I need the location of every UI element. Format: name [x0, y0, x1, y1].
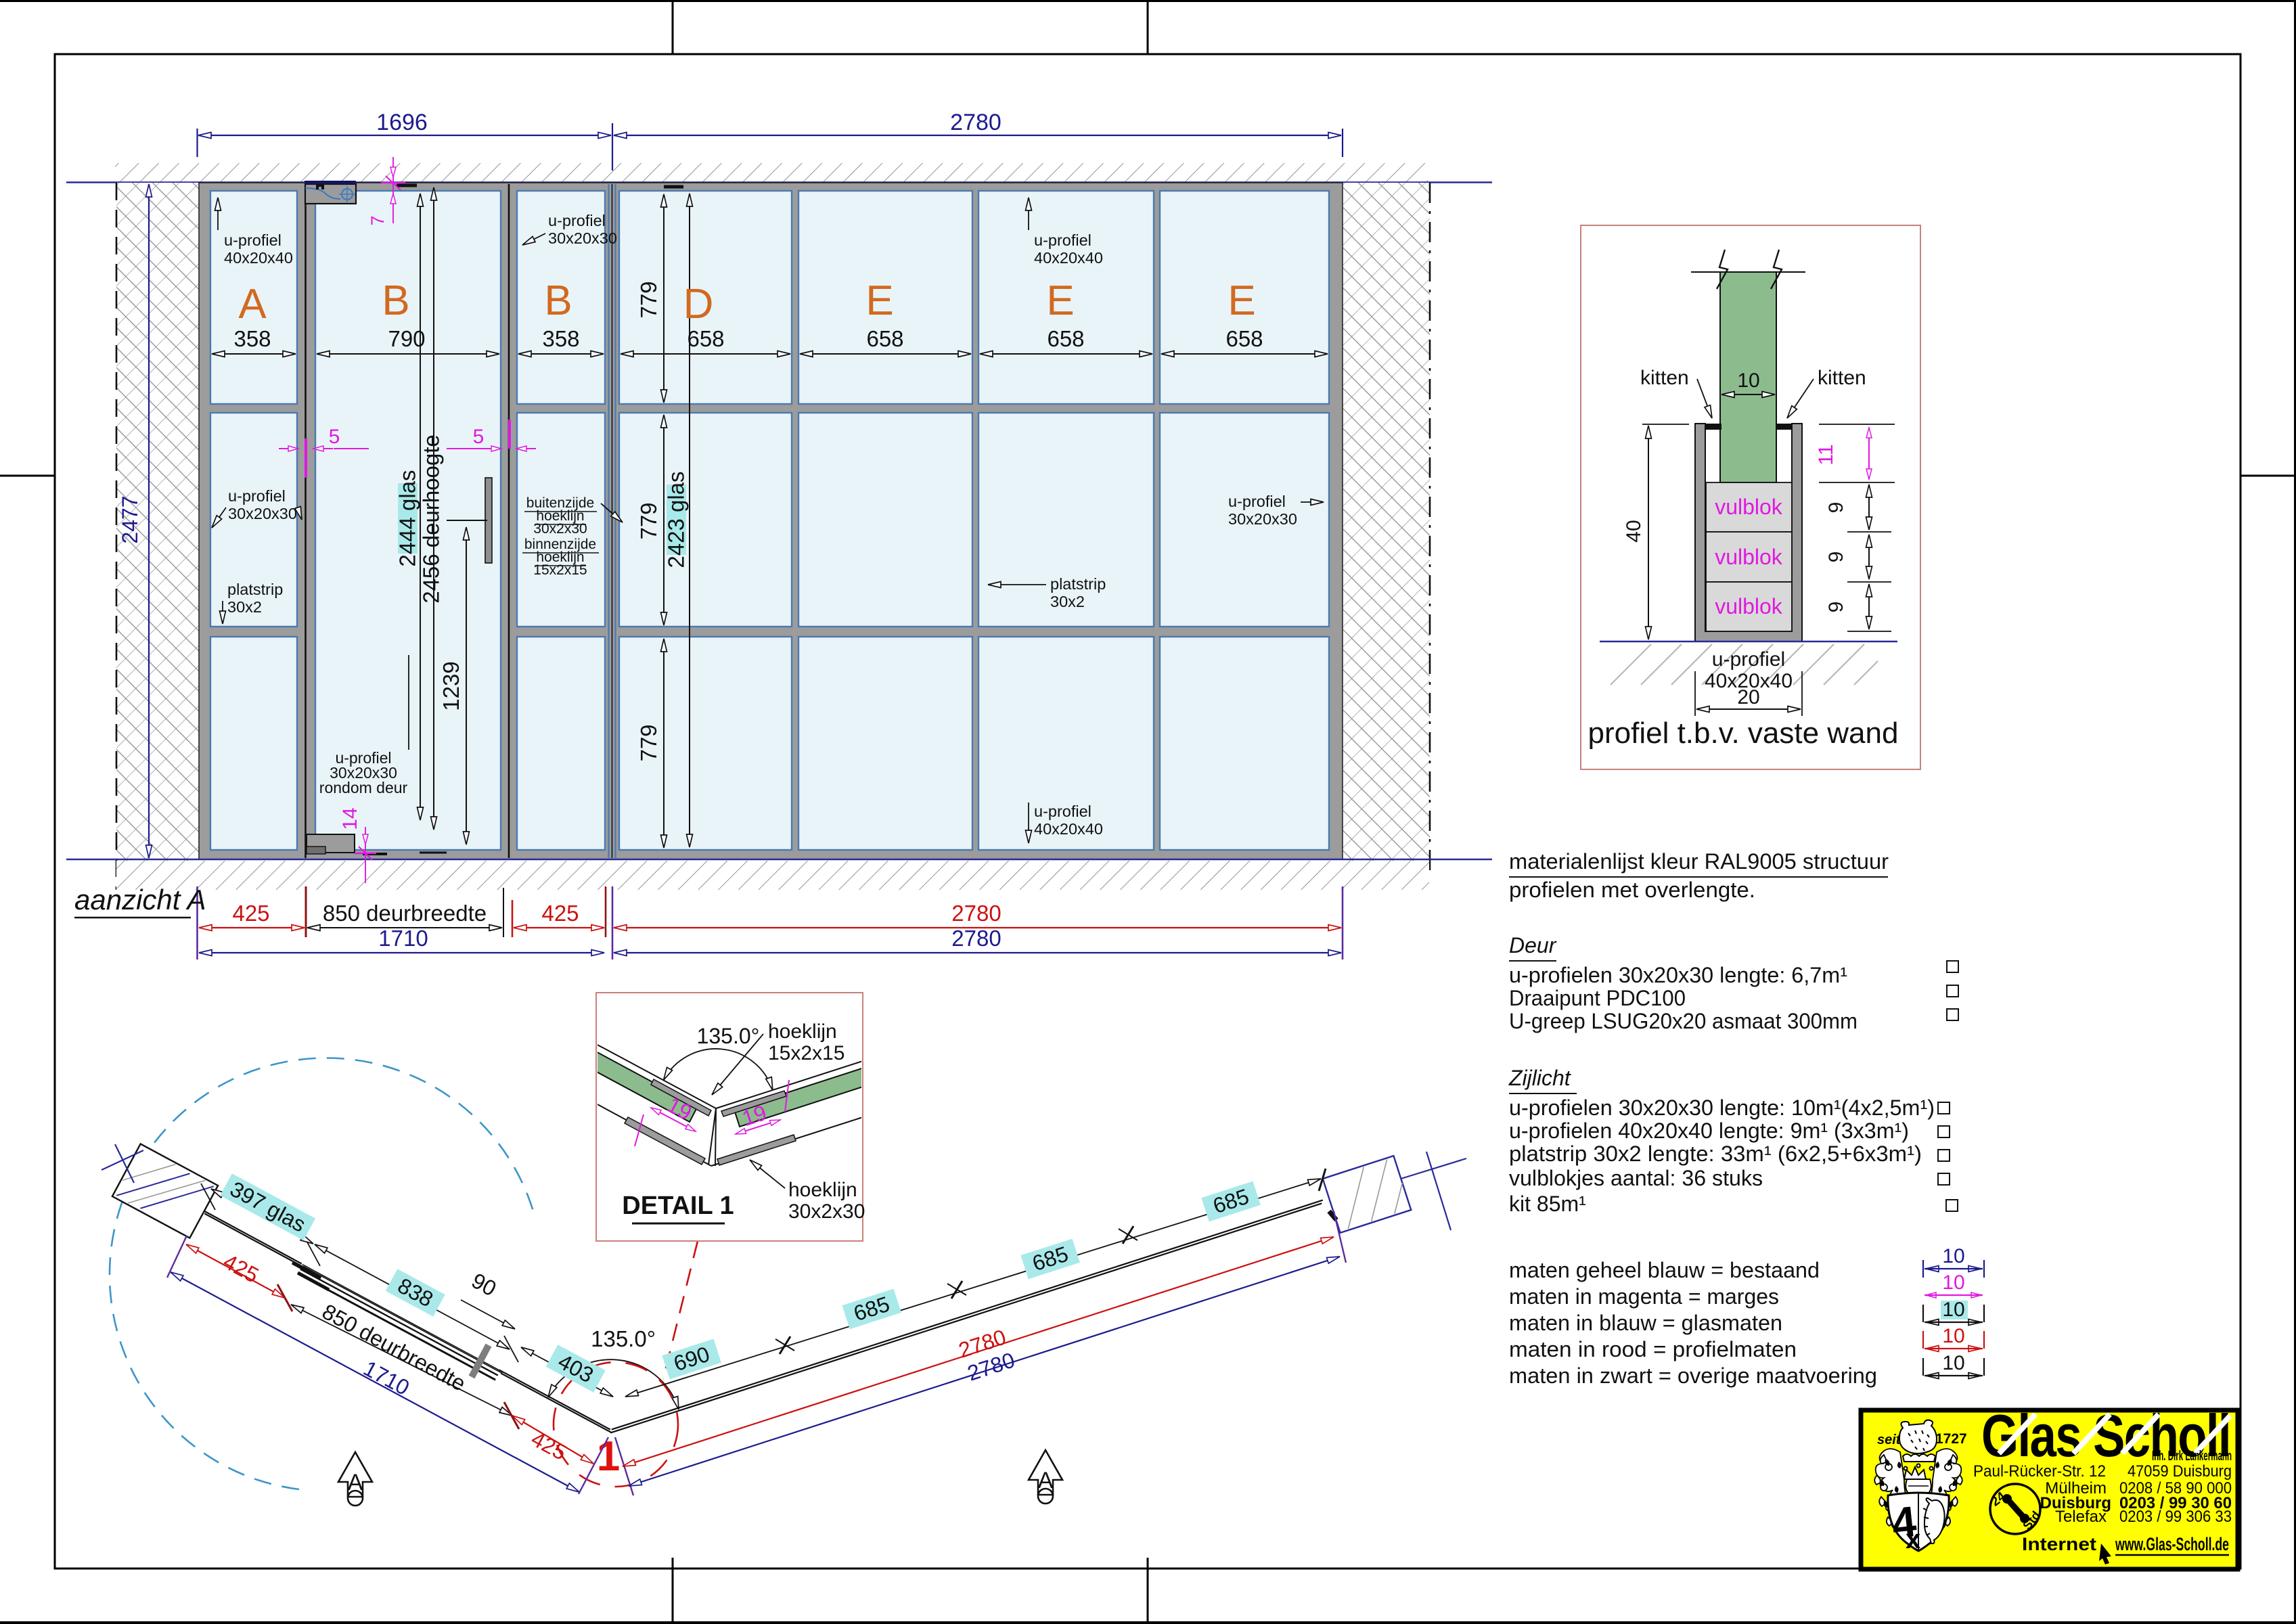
- svg-text:425: 425: [232, 901, 269, 926]
- svg-text:Zijlicht: Zijlicht: [1508, 1066, 1571, 1090]
- svg-text:2780: 2780: [951, 901, 1001, 926]
- svg-text:A: A: [348, 1470, 363, 1495]
- svg-text:0203 / 99 306 33: 0203 / 99 306 33: [2119, 1508, 2232, 1526]
- svg-text:seit: seit: [1877, 1433, 1901, 1447]
- svg-text:vulblokjes aantal: 36 stuks: vulblokjes aantal: 36 stuks: [1509, 1166, 1763, 1190]
- svg-text:vulblok: vulblok: [1715, 545, 1783, 569]
- svg-text:658: 658: [866, 326, 903, 351]
- svg-text:B: B: [382, 277, 409, 324]
- svg-text:30x2x30: 30x2x30: [533, 521, 587, 537]
- svg-text:1239: 1239: [438, 661, 464, 710]
- svg-text:30x20x30: 30x20x30: [548, 229, 617, 247]
- svg-text:425: 425: [541, 901, 579, 926]
- svg-text:Inh. Dirk Lankermann: Inh. Dirk Lankermann: [2152, 1449, 2232, 1464]
- svg-text:779: 779: [636, 724, 661, 761]
- svg-text:1696: 1696: [376, 110, 428, 135]
- svg-text:maten in rood = profielmaten: maten in rood = profielmaten: [1509, 1337, 1797, 1361]
- svg-text:1710: 1710: [378, 926, 428, 951]
- svg-text:hoeklijn: hoeklijn: [768, 1020, 837, 1043]
- svg-text:9: 9: [1825, 502, 1847, 514]
- svg-text:40x20x40: 40x20x40: [1034, 820, 1103, 838]
- svg-text:www.Glas-Scholl.de: www.Glas-Scholl.de: [2115, 1534, 2229, 1554]
- svg-text:2444 glas: 2444 glas: [395, 470, 420, 566]
- svg-text:10: 10: [1942, 1352, 1964, 1374]
- svg-text:platstrip: platstrip: [1050, 575, 1106, 593]
- svg-text:358: 358: [542, 326, 579, 351]
- svg-text:850 deurbreedte: 850 deurbreedte: [323, 901, 487, 926]
- svg-text:2423 glas: 2423 glas: [664, 471, 689, 568]
- svg-text:vulblok: vulblok: [1715, 495, 1783, 519]
- svg-text:u-profielen 30x20x30 lengte: 1: u-profielen 30x20x30 lengte: 10m¹(4x2,5m…: [1509, 1096, 1935, 1120]
- svg-text:x: x: [1906, 1525, 1920, 1554]
- svg-text:10: 10: [1942, 1325, 1964, 1347]
- svg-text:E: E: [865, 277, 893, 324]
- svg-text:kitten: kitten: [1640, 367, 1689, 389]
- svg-text:779: 779: [636, 281, 661, 318]
- svg-text:658: 658: [1225, 326, 1263, 351]
- svg-text:658: 658: [1047, 326, 1084, 351]
- svg-text:15x2x15: 15x2x15: [533, 562, 587, 578]
- svg-text:u-profiel: u-profiel: [224, 231, 282, 249]
- svg-text:15x2x15: 15x2x15: [768, 1042, 845, 1064]
- svg-text:u-profiel: u-profiel: [548, 212, 606, 229]
- svg-text:maten in magenta = marges: maten in magenta = marges: [1509, 1284, 1779, 1309]
- svg-text:kitten: kitten: [1818, 367, 1866, 389]
- svg-text:U-greep LSUG20x20 asmaat 300mm: U-greep LSUG20x20 asmaat 300mm: [1509, 1009, 1858, 1033]
- svg-text:2780: 2780: [950, 110, 1001, 135]
- svg-text:profiel t.b.v. vaste wand: profiel t.b.v. vaste wand: [1588, 717, 1899, 750]
- svg-text:E: E: [1046, 277, 1074, 324]
- svg-text:rondom deur: rondom deur: [319, 779, 408, 796]
- svg-text:30x20x30: 30x20x30: [228, 505, 297, 522]
- svg-text:u-profiel: u-profiel: [1034, 231, 1091, 249]
- svg-text:platstrip: platstrip: [227, 581, 283, 598]
- svg-text:Telefax: Telefax: [2055, 1508, 2107, 1526]
- svg-text:10: 10: [1942, 1245, 1964, 1267]
- svg-text:u-profiel: u-profiel: [1228, 493, 1286, 510]
- svg-text:Paul-Rücker-Str. 12: Paul-Rücker-Str. 12: [1973, 1462, 2106, 1481]
- svg-text:9: 9: [1825, 602, 1847, 613]
- svg-text:10: 10: [1942, 1271, 1964, 1294]
- svg-text:hoeklijn: hoeklijn: [788, 1179, 857, 1201]
- svg-text:Deur: Deur: [1509, 933, 1557, 957]
- svg-text:40x20x40: 40x20x40: [1034, 249, 1103, 267]
- svg-text:aanzicht A: aanzicht A: [74, 884, 206, 916]
- svg-text:5: 5: [473, 426, 485, 448]
- svg-text:DETAIL 1: DETAIL 1: [622, 1192, 734, 1220]
- svg-text:Internet: Internet: [2022, 1534, 2096, 1554]
- svg-text:u-profielen 40x20x40 lengte: 9: u-profielen 40x20x40 lengte: 9m¹ (3x3m¹): [1509, 1119, 1909, 1143]
- svg-text:135.0°: 135.0°: [697, 1024, 760, 1048]
- svg-text:2780: 2780: [951, 926, 1001, 951]
- svg-text:vulblok: vulblok: [1715, 594, 1783, 618]
- svg-text:14: 14: [339, 807, 361, 830]
- svg-text:kit 85m¹: kit 85m¹: [1509, 1192, 1586, 1216]
- svg-text:40x20x40: 40x20x40: [224, 249, 293, 267]
- svg-text:u-profiel: u-profiel: [1034, 803, 1091, 820]
- svg-text:2456 deurhoogte: 2456 deurhoogte: [419, 434, 444, 604]
- svg-text:u-profiel: u-profiel: [228, 487, 286, 505]
- svg-text:30x2: 30x2: [1050, 593, 1085, 610]
- svg-text:47059 Duisburg: 47059 Duisburg: [2128, 1462, 2232, 1481]
- svg-text:A: A: [1038, 1468, 1054, 1493]
- svg-text:B: B: [544, 277, 572, 324]
- svg-text:E: E: [1228, 277, 1255, 324]
- svg-text:7: 7: [367, 215, 388, 225]
- svg-text:platstrip 30x2 lengte: 33m¹ (6: platstrip 30x2 lengte: 33m¹ (6x2,5+6x3m¹…: [1509, 1142, 1922, 1166]
- svg-text:maten in blauw = glasmaten: maten in blauw = glasmaten: [1509, 1311, 1782, 1335]
- svg-text:Draaipunt PDC100: Draaipunt PDC100: [1509, 986, 1686, 1010]
- svg-text:profielen met overlengte.: profielen met overlengte.: [1509, 878, 1755, 902]
- svg-text:779: 779: [636, 502, 661, 539]
- svg-text:maten geheel blauw = bestaand: maten geheel blauw = bestaand: [1509, 1258, 1820, 1282]
- svg-text:30x2x30: 30x2x30: [788, 1200, 865, 1223]
- svg-text:11: 11: [1815, 444, 1837, 465]
- svg-text:D: D: [683, 281, 714, 328]
- svg-text:30x2: 30x2: [227, 598, 262, 616]
- svg-text:10: 10: [1942, 1299, 1964, 1321]
- svg-text:u-profiel: u-profiel: [1712, 648, 1785, 671]
- svg-text:9: 9: [1825, 551, 1847, 563]
- svg-text:u-profielen 30x20x30 lengte: 6: u-profielen 30x20x30 lengte: 6,7m¹: [1509, 963, 1847, 987]
- svg-text:A: A: [238, 281, 267, 328]
- svg-text:30x20x30: 30x20x30: [1228, 510, 1297, 528]
- svg-text:2477: 2477: [118, 495, 142, 543]
- svg-text:maten in zwart = overige maatv: maten in zwart = overige maatvoering: [1509, 1363, 1877, 1388]
- svg-text:20: 20: [1737, 686, 1759, 708]
- svg-text:358: 358: [233, 326, 271, 351]
- svg-text:658: 658: [687, 326, 724, 351]
- svg-text:135.0°: 135.0°: [591, 1326, 656, 1351]
- svg-text:10: 10: [1737, 369, 1759, 392]
- svg-text:40: 40: [1623, 520, 1645, 542]
- svg-text:materialenlijst kleur RAL9005: materialenlijst kleur RAL9005 structuur: [1509, 849, 1889, 874]
- svg-text:5: 5: [329, 426, 340, 448]
- svg-text:1727: 1727: [1935, 1431, 1967, 1447]
